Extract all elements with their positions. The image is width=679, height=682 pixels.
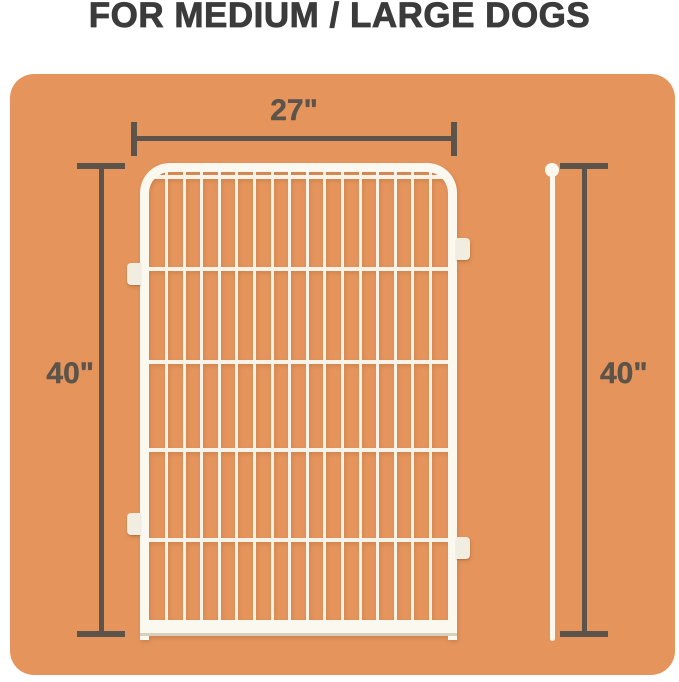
background-panel: 27" 40" 40" — [10, 74, 675, 675]
left-height-label: 40" — [24, 357, 94, 391]
right-height-label: 40" — [600, 357, 679, 391]
right-height-cap-top — [560, 163, 608, 169]
width-dimension: 27" — [131, 122, 457, 156]
width-dimension-label: 27" — [131, 94, 457, 128]
left-height-line — [99, 168, 104, 632]
fence-frame — [140, 163, 457, 640]
mounting-tab-right-lower — [456, 537, 470, 559]
right-height-line — [582, 168, 587, 632]
right-height-dimension — [560, 163, 608, 637]
right-height-cap-bottom — [560, 631, 608, 637]
mounting-tab-left-lower — [127, 513, 141, 535]
mounting-tab-left-upper — [127, 263, 141, 285]
left-height-dimension — [77, 163, 125, 637]
left-height-cap-top — [77, 163, 125, 169]
infographic: FOR MEDIUM / LARGE DOGS 27" 40" 40" — [0, 0, 679, 682]
width-dimension-cap-right — [451, 122, 457, 156]
height-reference-rod — [550, 175, 555, 641]
left-height-cap-bottom — [77, 631, 125, 637]
fence-bottom-bar — [140, 620, 457, 636]
fence-panel — [140, 163, 457, 640]
page-title: FOR MEDIUM / LARGE DOGS — [0, 0, 679, 36]
width-dimension-line — [134, 136, 454, 141]
width-dimension-cap-left — [131, 122, 137, 156]
mounting-tab-right-upper — [456, 238, 470, 260]
